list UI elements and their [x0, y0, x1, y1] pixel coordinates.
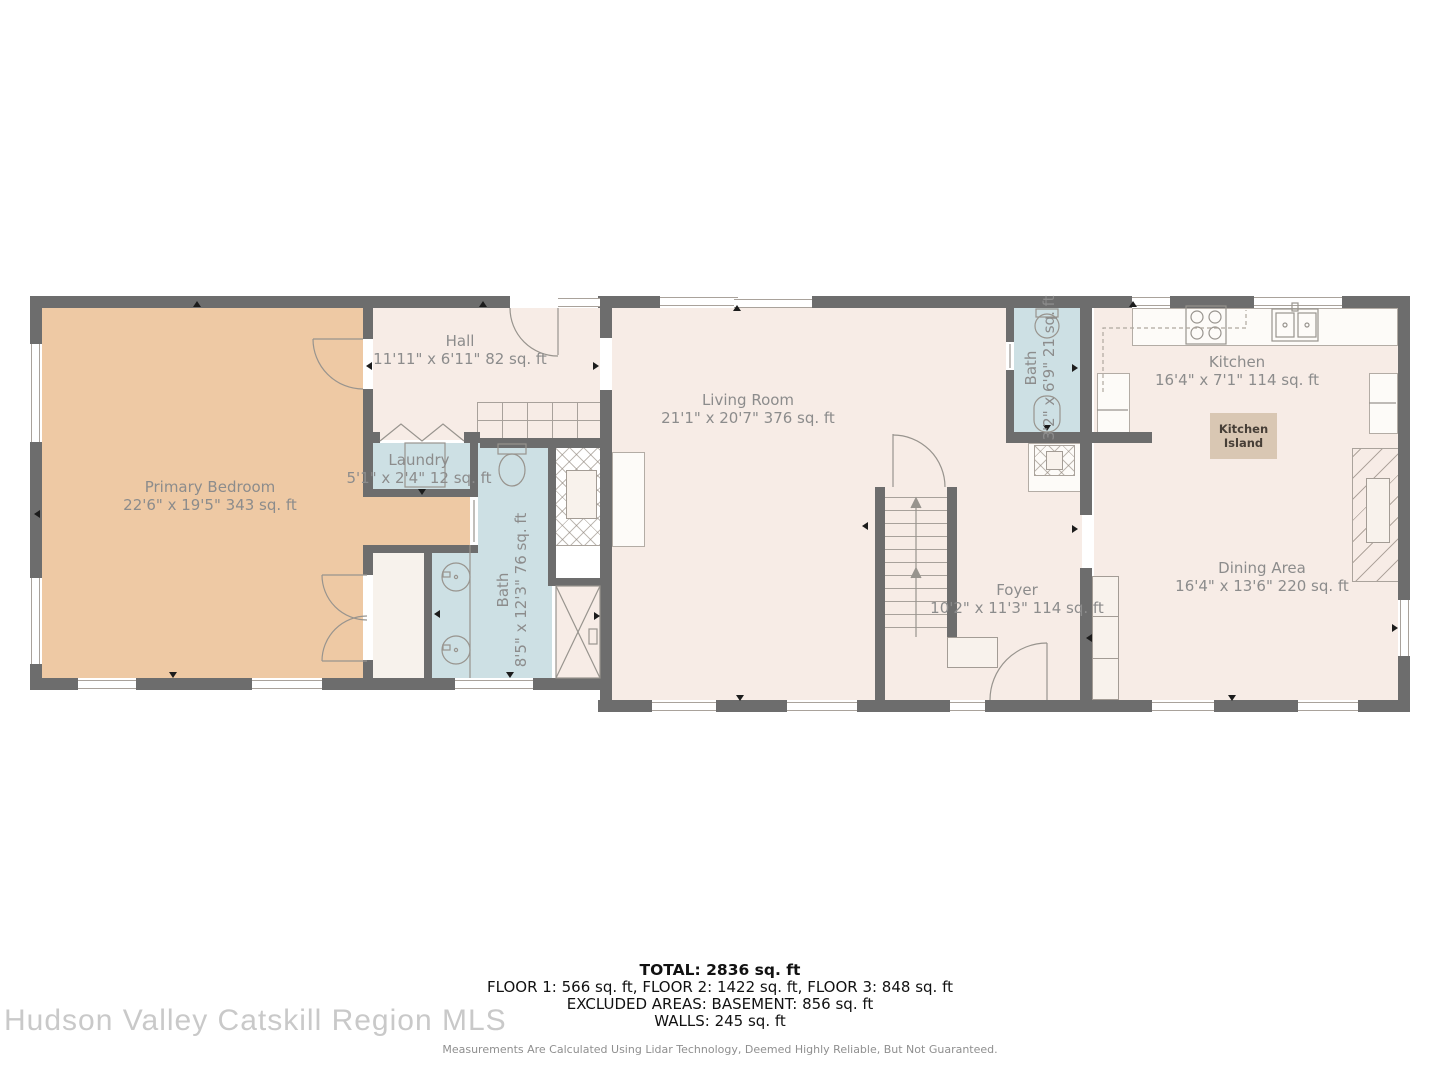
direction-marker — [169, 672, 177, 678]
room-dims: 16'4" x 13'6" 220 sq. ft — [1112, 577, 1412, 595]
room-name: Foyer — [917, 581, 1117, 599]
room-name: Laundry — [334, 451, 504, 469]
room-name: Hall — [335, 332, 585, 350]
window — [1400, 600, 1409, 656]
living-room-label: Living Room 21'1" x 20'7" 376 sq. ft — [598, 391, 898, 427]
direction-marker — [594, 612, 600, 620]
primary-bath-label: Bath 8'5" x 12'3" 76 sq. ft — [494, 500, 530, 680]
pocket-door — [470, 499, 478, 543]
dining-area-label: Dining Area 16'4" x 13'6" 220 sq. ft — [1112, 559, 1412, 595]
direction-marker — [434, 610, 440, 618]
room-name: Dining Area — [1112, 559, 1412, 577]
kitchen-island-label: Kitchen Island — [1210, 422, 1277, 450]
direction-marker — [736, 695, 744, 701]
room-name: Kitchen — [1087, 353, 1387, 371]
floor-areas: FLOOR 1: 566 sq. ft, FLOOR 2: 1422 sq. f… — [320, 979, 1120, 996]
room-dims: 10'2" x 11'3" 114 sq. ft — [917, 599, 1117, 617]
direction-marker — [593, 362, 599, 370]
chimney-inner-left — [566, 470, 597, 519]
direction-marker — [1072, 525, 1078, 533]
window — [734, 299, 812, 308]
window — [652, 702, 716, 711]
window — [1254, 297, 1342, 306]
room-name: Living Room — [598, 391, 898, 409]
room-name: Bath — [494, 500, 512, 680]
window — [31, 578, 40, 664]
laundry-label: Laundry 5'1" x 2'4" 12 sq. ft — [334, 451, 504, 487]
room-dims: 11'11" x 6'11" 82 sq. ft — [335, 350, 585, 368]
shower-area — [556, 586, 600, 678]
direction-marker — [1228, 695, 1236, 701]
stair-landing — [947, 637, 998, 668]
measurement-disclaimer: Measurements Are Calculated Using Lidar … — [360, 1043, 1080, 1056]
direction-marker — [479, 301, 487, 307]
room-dims: 22'6" x 19'5" 343 sq. ft — [60, 496, 360, 514]
primary-bedroom-label: Primary Bedroom 22'6" x 19'5" 343 sq. ft — [60, 478, 360, 514]
window — [1132, 297, 1170, 306]
window — [558, 298, 600, 307]
kitchen-counter-top — [1132, 308, 1398, 346]
kitchen-label: Kitchen 16'4" x 7'1" 114 sq. ft — [1087, 353, 1387, 389]
room-name: Primary Bedroom — [60, 478, 360, 496]
window — [1152, 702, 1214, 711]
primary-bath-lower — [432, 545, 552, 678]
direction-marker — [418, 489, 426, 495]
floor-plan-page: Primary Bedroom 22'6" x 19'5" 343 sq. ft… — [0, 0, 1440, 1080]
pocket-door — [1006, 342, 1014, 370]
direction-marker — [34, 510, 40, 518]
direction-marker — [733, 305, 741, 311]
total-area: TOTAL: 2836 sq. ft — [320, 962, 1120, 979]
half-bath-label: Bath 3'2" x 6'9" 21 sq. ft — [1022, 278, 1058, 458]
room-dims: 3'2" x 6'9" 21 sq. ft — [1040, 278, 1058, 458]
direction-marker — [1392, 624, 1398, 632]
direction-marker — [1129, 301, 1137, 307]
foyer-closet-shelf — [1092, 616, 1119, 660]
room-dims: 21'1" x 20'7" 376 sq. ft — [598, 409, 898, 427]
window — [252, 680, 322, 689]
mls-watermark: Hudson Valley Catskill Region MLS — [4, 1004, 507, 1038]
window — [31, 344, 40, 442]
room-dims: 8'5" x 12'3" 76 sq. ft — [512, 500, 530, 680]
hall-label: Hall 11'11" x 6'11" 82 sq. ft — [335, 332, 585, 368]
room-name: Bath — [1022, 278, 1040, 458]
direction-marker — [1072, 364, 1078, 372]
window — [455, 680, 533, 689]
deck-stairs-inner — [1366, 478, 1390, 543]
fireplace-bump — [612, 452, 645, 547]
window — [787, 702, 857, 711]
room-dims: 5'1" x 2'4" 12 sq. ft — [334, 469, 504, 487]
hall-stairs — [477, 402, 600, 439]
direction-marker — [862, 522, 868, 530]
window — [660, 297, 738, 306]
foyer-label: Foyer 10'2" x 11'3" 114 sq. ft — [917, 581, 1117, 617]
window — [78, 680, 136, 689]
room-dims: 16'4" x 7'1" 114 sq. ft — [1087, 371, 1387, 389]
direction-marker — [1086, 634, 1092, 642]
window — [950, 702, 985, 711]
foyer-closet-shelf — [1092, 658, 1119, 700]
window — [1298, 702, 1358, 711]
kitchen-island: Kitchen Island — [1210, 413, 1277, 459]
direction-marker — [193, 301, 201, 307]
bedroom-corridor — [363, 497, 470, 545]
